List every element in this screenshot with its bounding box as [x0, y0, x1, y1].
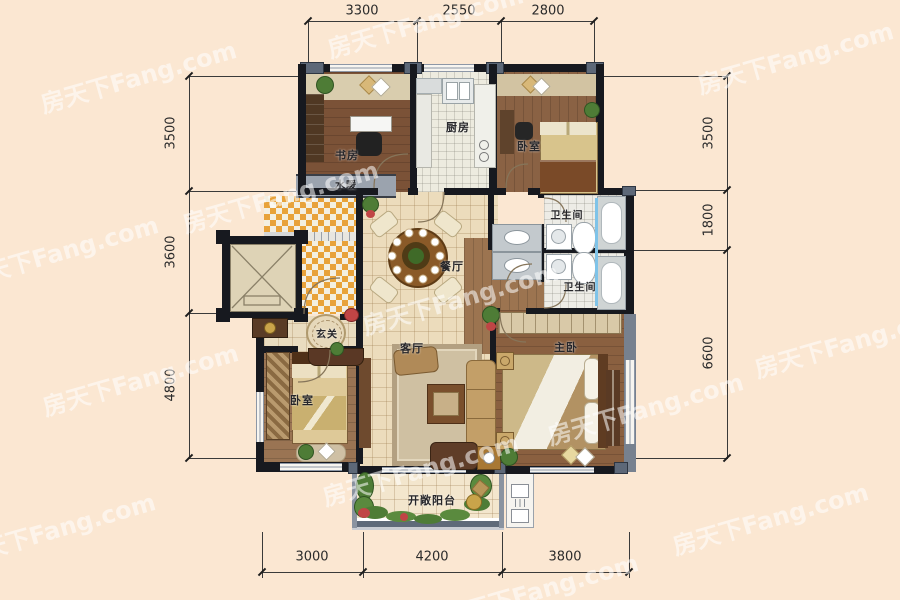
room-label-dining: 餐厅 [440, 258, 464, 274]
room-label-bath-top: 卫生间 [551, 207, 584, 222]
room-label-balcony: 开敞阳台 [408, 492, 456, 508]
dining-plates [388, 229, 444, 283]
room-label-living: 客厅 [400, 340, 424, 356]
room-label-entry: 玄关 [316, 326, 338, 341]
room-label-water-heating: 水暖 [335, 177, 357, 192]
dining-chairs [369, 210, 463, 305]
floorplan-canvas: 3300 2550 2800 3000 4200 3800 3500 3600 … [0, 0, 900, 600]
room-label-master: 主卧 [554, 339, 578, 355]
room-label-bath-bottom: 卫生间 [564, 279, 597, 294]
elevator-cross-icon [232, 246, 292, 308]
room-label-bedroom-top: 卧室 [517, 138, 541, 154]
plan-linework [0, 0, 900, 600]
room-label-study: 书房 [335, 147, 359, 163]
room-label-bedroom-left: 卧室 [290, 392, 314, 408]
room-label-kitchen: 厨房 [446, 119, 470, 135]
